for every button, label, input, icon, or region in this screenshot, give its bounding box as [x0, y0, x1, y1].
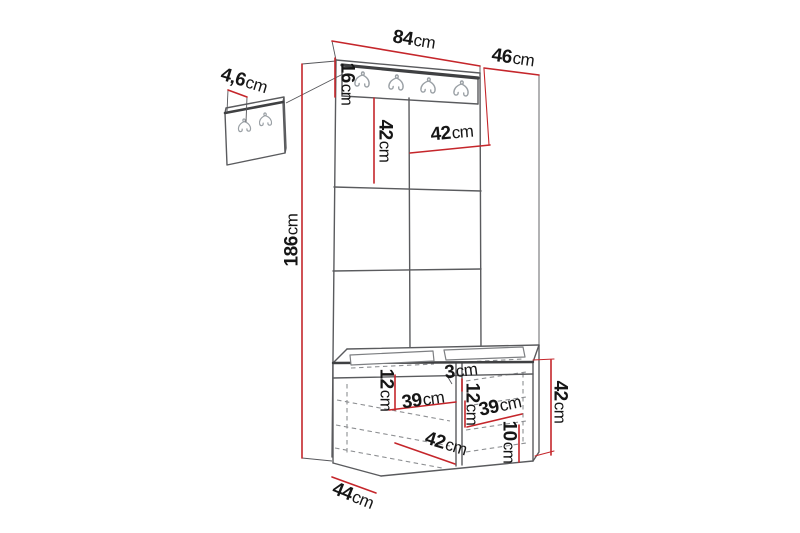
- dimension-plinth-height: 10cm: [500, 421, 519, 464]
- dimension-shelf-drop-left: 12cm: [377, 369, 396, 412]
- dimension-panel-tile-right: 42cm: [430, 122, 474, 145]
- dimension-bench-height: 42cm: [551, 381, 570, 424]
- dimension-hook-rail-height: 16cm: [338, 63, 357, 106]
- diagram-canvas: 84cm 46cm 16cm 42cm 42cm 186cm 4,6cm 3cm…: [0, 0, 800, 533]
- furniture-diagram: [0, 0, 800, 533]
- dimension-divider-thickness: 3cm: [444, 360, 479, 383]
- dimension-total-height: 186cm: [283, 214, 302, 267]
- dimension-panel-tile-left: 42cm: [376, 120, 395, 163]
- coat-hook-icon: [389, 74, 404, 90]
- coat-hook-icon: [454, 80, 469, 96]
- coat-hook-icon: [421, 77, 436, 93]
